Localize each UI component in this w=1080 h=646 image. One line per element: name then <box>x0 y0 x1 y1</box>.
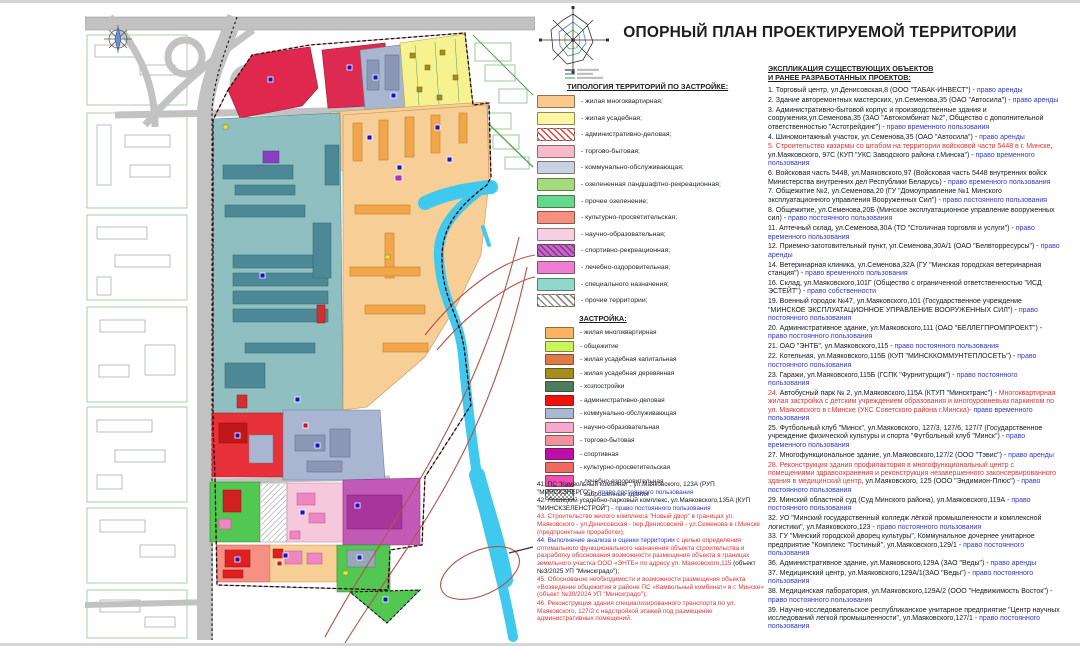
legend-label: - хозпостройки <box>580 383 624 390</box>
explication-item: 25. Футбольный клуб "Минск", ул.Маяковск… <box>768 425 1060 450</box>
legend-label: - лечебно-оздоровительная; <box>581 264 670 271</box>
legend-item: - научно-образовательная; <box>537 228 769 241</box>
context-blocks-left <box>87 35 187 638</box>
note-item: 41. ПС "Камвольный комбинат", ул.Маяковс… <box>537 481 767 496</box>
explication-item: 5. Строительство казармы со штабом на те… <box>768 143 1060 168</box>
legend-label: - жилая многоквартирная <box>580 329 656 336</box>
legend-item: - жилая усадебная деревянная <box>537 368 769 379</box>
legend-item: - озелененная ландшафтно-рекреационная; <box>537 178 769 191</box>
explication-item: 38. Медицинская лаборатория, ул.Маяковск… <box>768 588 1060 605</box>
legend-label: - научно-образовательная; <box>581 231 666 238</box>
legend-label: - озелененная ландшафтно-рекреационная; <box>581 181 721 188</box>
explication-item: 19. Военный городок №47, ул.Маяковского,… <box>768 298 1060 323</box>
explication-column: ЭКСПЛИКАЦИЯ СУЩЕСТВУЮЩИХ ОБЪЕКТОВ И РАНЕ… <box>768 64 1060 633</box>
legend-swatch <box>537 145 575 158</box>
page-title: ОПОРНЫЙ ПЛАН ПРОЕКТИРУЕМОЙ ТЕРРИТОРИИ <box>590 24 1050 42</box>
legend-label: - научно-образовательная <box>580 424 659 431</box>
legend-item: - жилая многоквартирная <box>537 327 769 338</box>
legend-swatch <box>545 462 574 473</box>
zone-usadebnaya-yellow <box>400 34 473 108</box>
legend-swatch <box>545 422 574 433</box>
legend-item: - коммунально-обслуживающая; <box>537 161 769 174</box>
legend-label: - специального назначения; <box>581 281 669 288</box>
explication-header: ЭКСПЛИКАЦИЯ СУЩЕСТВУЮЩИХ ОБЪЕКТОВ И РАНЕ… <box>768 64 1060 82</box>
legend-swatch <box>545 381 574 392</box>
explication-item: 6. Войсковая часть 5448, ул.Маяковского,… <box>768 170 1060 187</box>
typology-legend-header: ТИПОЛОГИЯ ТЕРРИТОРИЙ ПО ЗАСТРОЙКЕ: <box>567 82 769 91</box>
explication-item: 14. Ветеринарная клиника, ул.Семенова,32… <box>768 262 1060 279</box>
legend-label: - жилая усадебная капитальная <box>580 356 677 363</box>
legend-item: - торгово-бытовая; <box>537 145 769 158</box>
note-item: 46. Реконструкция здания специализирован… <box>537 600 767 623</box>
functional-zones <box>210 34 491 623</box>
explication-item: 16. Склад, ул.Маяковского,101Г (Общество… <box>768 280 1060 297</box>
legend-swatch <box>537 95 575 108</box>
explication-item: 2. Здание авторемонтных мастерских, ул.С… <box>768 97 1060 105</box>
explication-item: 12. Приемно-заготовительный пункт, ул.Се… <box>768 243 1060 260</box>
explication-item: 27. Многофункциональное здание, ул.Маяко… <box>768 452 1060 460</box>
development-legend-list: - жилая многоквартирная - общежитие - жи… <box>537 327 769 500</box>
legend-item: - культурно-просветительская <box>537 462 769 473</box>
legend-item: - административно-деловая; <box>537 128 769 141</box>
development-legend-header: ЗАСТРОЙКА: <box>579 314 769 323</box>
legend-swatch <box>545 408 574 419</box>
legend-label: - жилая усадебная деревянная <box>580 370 674 377</box>
photo-edge-top <box>0 0 1080 3</box>
legend-swatch <box>537 228 575 241</box>
legend-label: - коммунально-обслуживающая <box>580 410 676 417</box>
explication-item: 28. Реконструкция здания профилактория в… <box>768 462 1060 496</box>
legend-label: - торгово-бытовая; <box>581 148 640 155</box>
legend-item: - коммунально-обслуживающая <box>537 408 769 419</box>
note-item: 45. Обоснование необходимости и возможно… <box>537 576 767 599</box>
territory-map <box>85 5 535 643</box>
explication-item: 3. Административно-бытовой корпус и прои… <box>768 107 1060 132</box>
legend-label: - административно-деловая; <box>581 131 671 138</box>
legend-swatch <box>537 161 575 174</box>
legend-item: - жилая усадебная капитальная <box>537 354 769 365</box>
legend-swatch <box>545 327 574 338</box>
note-item: 42. Лошицкий усадебно-парковый комплекс,… <box>537 497 767 512</box>
legend-item: - общежитие <box>537 341 769 352</box>
legend-label: - спортивно-рекреационная; <box>581 247 670 254</box>
typology-legend-list: - жилая многоквартирная; - жилая усадебн… <box>537 95 769 307</box>
legend-label: - жилая многоквартирная; <box>581 98 663 105</box>
legend-item: - жилая усадебная; <box>537 112 769 125</box>
explication-item: 8. Общежитие, ул.Семенова,20Б (Минское э… <box>768 207 1060 224</box>
legend-label: - коммунально-обслуживающая; <box>581 164 684 171</box>
explication-item: 37. Медицинский центр, ул.Маяковского,12… <box>768 570 1060 587</box>
legend-item: - прочее озеленение; <box>537 195 769 208</box>
legend-swatch <box>537 211 575 224</box>
explication-item: 11. Аптечный склад, ул.Семенова,30А (ТО … <box>768 225 1060 242</box>
legend-item: - специального назначения; <box>537 278 769 291</box>
legend-item: - торгово-бытовая <box>537 435 769 446</box>
legend-item: - лечебно-оздоровительная; <box>537 261 769 274</box>
note-item: 44. Выполнение анализа и оценки территор… <box>537 537 767 575</box>
legend-swatch <box>545 395 574 406</box>
explication-item: 36. Административное здание, ул.Маяковск… <box>768 560 1060 568</box>
legend-swatch <box>537 278 575 291</box>
legend-column: ТИПОЛОГИЯ ТЕРРИТОРИЙ ПО ЗАСТРОЙКЕ: - жил… <box>537 82 769 502</box>
explication-item: 39. Научно-исследовательское республикан… <box>768 607 1060 632</box>
legend-label: - прочее озеленение; <box>581 198 648 205</box>
compass-legend <box>565 69 603 79</box>
legend-label: - административно-деловая <box>580 397 665 404</box>
legend-swatch <box>537 128 575 141</box>
legend-label: - торгово-бытовая <box>580 437 635 444</box>
legend-item: - научно-образовательная <box>537 422 769 433</box>
legend-item: - хозпостройки <box>537 381 769 392</box>
explication-item: 22. Котельная, ул.Маяковского,115Б (КУП … <box>768 353 1060 370</box>
legend-swatch <box>537 261 575 274</box>
wind-rose-icon <box>535 6 625 82</box>
legend-swatch <box>537 178 575 191</box>
explication-item: 4. Шиномонтажный участок, ул.Семенова,35… <box>768 134 1060 142</box>
oporny-plan-sheet: { "title": "ОПОРНЫЙ ПЛАН ПРОЕКТИРУЕМОЙ Т… <box>0 0 1080 646</box>
legend-swatch <box>545 368 574 379</box>
legend-item: - прочие территории; <box>537 294 769 307</box>
legend-label: - культурно-просветительская; <box>581 214 677 221</box>
explication-item: 20. Административное здание, ул.Маяковск… <box>768 325 1060 342</box>
legend-swatch <box>537 294 575 307</box>
legend-label: - общежитие <box>580 343 618 350</box>
legend-label: - культурно-просветительская <box>580 464 670 471</box>
legend-item: - административно-деловая <box>537 395 769 406</box>
legend-swatch <box>545 354 574 365</box>
legend-label: - прочие территории; <box>581 297 648 304</box>
legend-swatch <box>537 244 575 257</box>
zone-cultural-crimson <box>228 47 318 118</box>
legend-swatch <box>545 435 574 446</box>
explication-item: 33. ГУ "Минский городской дворец культур… <box>768 533 1060 558</box>
explication-item: 24. Автобусный парк № 2, ул.Маяковского,… <box>768 390 1060 424</box>
legend-item: - спортивно-рекреационная; <box>537 244 769 257</box>
explication-item: 32. УО "Минский государственный колледж … <box>768 515 1060 532</box>
legend-label: - жилая усадебная; <box>581 115 642 122</box>
legend-item: - жилая многоквартирная; <box>537 95 769 108</box>
explication-item: 1. Торговый центр, ул.Денисовская,8 (ООО… <box>768 87 1060 95</box>
explication-list: 1. Торговый центр, ул.Денисовская,8 (ООО… <box>768 87 1060 632</box>
notes-list: 41. ПС "Камвольный комбинат", ул.Маяковс… <box>537 481 767 624</box>
legend-swatch <box>545 341 574 352</box>
legend-swatch <box>545 448 574 459</box>
explication-item: 23. Гаражи, ул.Маяковского,115Б (ГСПК "Ф… <box>768 372 1060 389</box>
legend-swatch <box>537 195 575 208</box>
legend-item: - спортивная <box>537 448 769 459</box>
explication-item: 7. Общежитие №2, ул.Семенова,20 (ГУ "Дом… <box>768 188 1060 205</box>
legend-item: - культурно-просветительская; <box>537 211 769 224</box>
explication-item: 29. Минский областной суд (Суд Минского … <box>768 497 1060 514</box>
legend-label: - спортивная <box>580 451 619 458</box>
explication-item: 21. ОАО "ЭНТБ", ул.Маяковского,115 - пра… <box>768 343 1060 351</box>
legend-swatch <box>537 112 575 125</box>
note-item: 43. Строительство жилого комплекса "Новы… <box>537 513 767 536</box>
